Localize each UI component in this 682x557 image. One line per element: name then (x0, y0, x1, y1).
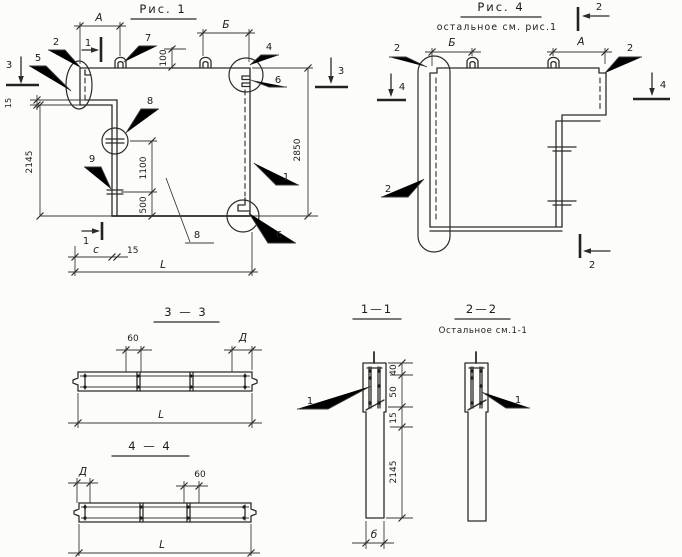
sec44-slab-end-keys (74, 503, 256, 522)
fig1-dim-2145: 2145 (25, 151, 35, 174)
section-3-3: 3 — 3 60 Д L (68, 305, 262, 428)
sec11-dim-chain-lines (386, 363, 413, 518)
fig1-dim-15-left: 15 (3, 98, 13, 108)
sec33-dim-60: 60 (127, 334, 139, 344)
fig1-stem (112, 100, 117, 216)
section-1-1: 1—1 40 50 15 2145 б 1 (297, 302, 413, 549)
fig1-section3-right-arrow-icon (328, 76, 334, 84)
sec44-dim-60-lines (176, 481, 208, 503)
sec44-dim-l: L (159, 539, 165, 551)
fig1-callout-7: 7 (145, 33, 151, 44)
fig4-section2-bottom-label: 2 (589, 260, 595, 271)
fig1-detail-bubble-stem (102, 128, 128, 154)
sec44-dim-60: 60 (194, 470, 206, 480)
fig4-dim-a: А (576, 36, 584, 48)
fig4-lifting-loop-right (548, 57, 559, 68)
fig1-callout6-top-leader (251, 80, 287, 87)
fig4-section2-top-label: 2 (596, 2, 602, 13)
fig4-lifting-loop-left (467, 57, 478, 68)
fig1-dim-b: Б (222, 19, 229, 31)
drawing-sheet: Рис. 1 А Б 100 (0, 0, 682, 557)
fig4-detail-capsule (418, 56, 450, 252)
sec44-division-lines (140, 503, 190, 522)
fig4-section4-left-arrow-icon (388, 89, 394, 97)
sec22-callout1-leader (482, 392, 530, 408)
fig4-section2-top-arrow-icon (582, 13, 590, 19)
fig4-section4-right-arrow-icon (649, 88, 655, 96)
fig1-section3-left-arrow-icon (18, 76, 24, 84)
fig1-callout7-leader (124, 46, 157, 62)
fig1-dim-100: 100 (159, 49, 169, 66)
sec33-slab-end-keys (73, 372, 257, 391)
fig4-dim-a-lines (547, 48, 612, 64)
fig1-top-right-keys (242, 76, 250, 87)
fig1-callout-4: 4 (266, 42, 272, 53)
fig1-callout9-leader (84, 167, 111, 189)
fig1-stem-joint-mark-8 (106, 139, 124, 143)
sec11-dim-b: б (371, 529, 378, 541)
sec44-rebar-dots (83, 505, 245, 519)
sec22-title: 2—2 (466, 302, 498, 316)
sec33-dim-d-lines (224, 346, 262, 372)
fig1-step-lines (80, 100, 117, 105)
fig1-section1-bottom-label: 1 (83, 236, 89, 247)
sec22-column-outline (465, 363, 488, 521)
fig1-callout-9: 9 (89, 154, 95, 165)
fig1-lifting-loop-right (200, 57, 211, 68)
fig1-dim-15-bottom: 15 (127, 246, 138, 256)
fig1-callout6-bottom-leader (249, 213, 296, 243)
fig1-callout-5: 5 (35, 53, 41, 64)
sec22-rebar-dots (470, 369, 482, 404)
fig1-section3-left-label: 3 (6, 60, 12, 71)
fig1-callout-1: 1 (283, 172, 289, 183)
sec11-callout-1: 1 (307, 396, 313, 407)
section-2-2: 2—2 Остальное см.1-1 1 (439, 302, 530, 521)
fig1-callout-8-bottom: 8 (194, 230, 200, 241)
sec11-dim-40: 40 (389, 364, 399, 376)
sec33-dim-l-lines (68, 393, 262, 428)
sec11-column-outline (363, 363, 386, 518)
figure-4: Рис. 4 остальное см. рис.1 Б А 2 2 2 2 (377, 0, 670, 271)
sec11-rebar-dots (368, 369, 380, 404)
fig1-dim-l: L (160, 259, 166, 271)
fig1-callout-6-bottom: 6 (276, 230, 282, 241)
fig1-title: Рис. 1 (139, 2, 186, 16)
fig1-dim-2850: 2850 (293, 138, 303, 161)
sec11-dim-15: 15 (389, 412, 399, 423)
sec33-rebar-lines (80, 376, 250, 387)
fig1-callout2-leader (48, 50, 81, 68)
sec11-title: 1—1 (361, 302, 393, 316)
sec33-title: 3 — 3 (164, 305, 207, 319)
fig4-section4-right-label: 4 (660, 80, 666, 91)
fig1-callout-8-top: 8 (147, 96, 153, 107)
fig1-dim-1100: 1100 (139, 156, 149, 179)
fig1-dim-c: с (93, 244, 99, 256)
figure-1: Рис. 1 А Б 100 (3, 2, 348, 276)
sec33-rebar-dots (83, 374, 246, 388)
fig1-callout1-leader (254, 163, 299, 185)
sec22-callout-1: 1 (515, 395, 521, 406)
fig1-callout5-leader (29, 66, 71, 91)
fig4-callout-2-top-left: 2 (394, 43, 400, 54)
sec33-dim-60-lines (116, 346, 152, 372)
fig4-title: Рис. 4 (477, 0, 524, 14)
fig1-section1-top-arrow-icon (91, 47, 99, 53)
fig4-step-and-stem (556, 115, 606, 227)
fig1-detail-bubble-top-left (66, 61, 92, 109)
fig4-section4-left-label: 4 (399, 82, 405, 93)
fig1-callout8-bottom-leader (166, 178, 214, 243)
fig1-dim-2850-lines (252, 68, 313, 216)
fig4-dim-b: Б (448, 37, 455, 49)
section-4-4: 4 — 4 Д 60 L (68, 439, 260, 557)
fig1-section3-right-label: 3 (338, 66, 344, 77)
fig4-subtitle: остальное см. рис.1 (437, 22, 558, 33)
sec44-dim-d-lines (68, 478, 98, 503)
sec44-slab-edges (79, 503, 251, 522)
fig4-callout2-tr-leader (605, 57, 642, 73)
fig1-section1-top-label: 1 (85, 38, 91, 49)
fig1-dim-a: А (94, 12, 102, 24)
sec44-dim-d: Д (78, 466, 87, 478)
sec11-dim-2145: 2145 (389, 461, 399, 484)
sec33-division-lines (137, 372, 193, 391)
fig1-callout-6-top: 6 (275, 75, 281, 86)
sec11-dim-50: 50 (389, 386, 399, 398)
sec44-rebar-lines (81, 507, 249, 518)
sec33-dim-d: Д (238, 332, 247, 344)
sec44-title: 4 — 4 (128, 439, 171, 453)
sec33-slab-edges (78, 372, 252, 391)
fig4-callout-2-top-right: 2 (627, 43, 633, 54)
fig1-section1-bottom-arrow-icon (92, 228, 100, 234)
fig1-dim-500: 500 (139, 196, 149, 213)
fig1-lifting-loop-left (115, 57, 126, 68)
technical-drawing: Рис. 1 А Б 100 (0, 0, 682, 557)
sec33-dim-l: L (158, 409, 164, 421)
fig4-callout-2-left: 2 (385, 184, 391, 195)
fig1-callout-2: 2 (53, 37, 59, 48)
sec22-subtitle: Остальное см.1-1 (439, 326, 528, 336)
fig4-panel-top-edge (437, 68, 606, 73)
fig4-section2-bottom-arrow-icon (583, 248, 591, 254)
fig1-callout8-top-leader (126, 109, 159, 133)
fig1-stem-joint-mark-9 (107, 190, 123, 194)
sec33-dim-ticks (75, 347, 256, 427)
